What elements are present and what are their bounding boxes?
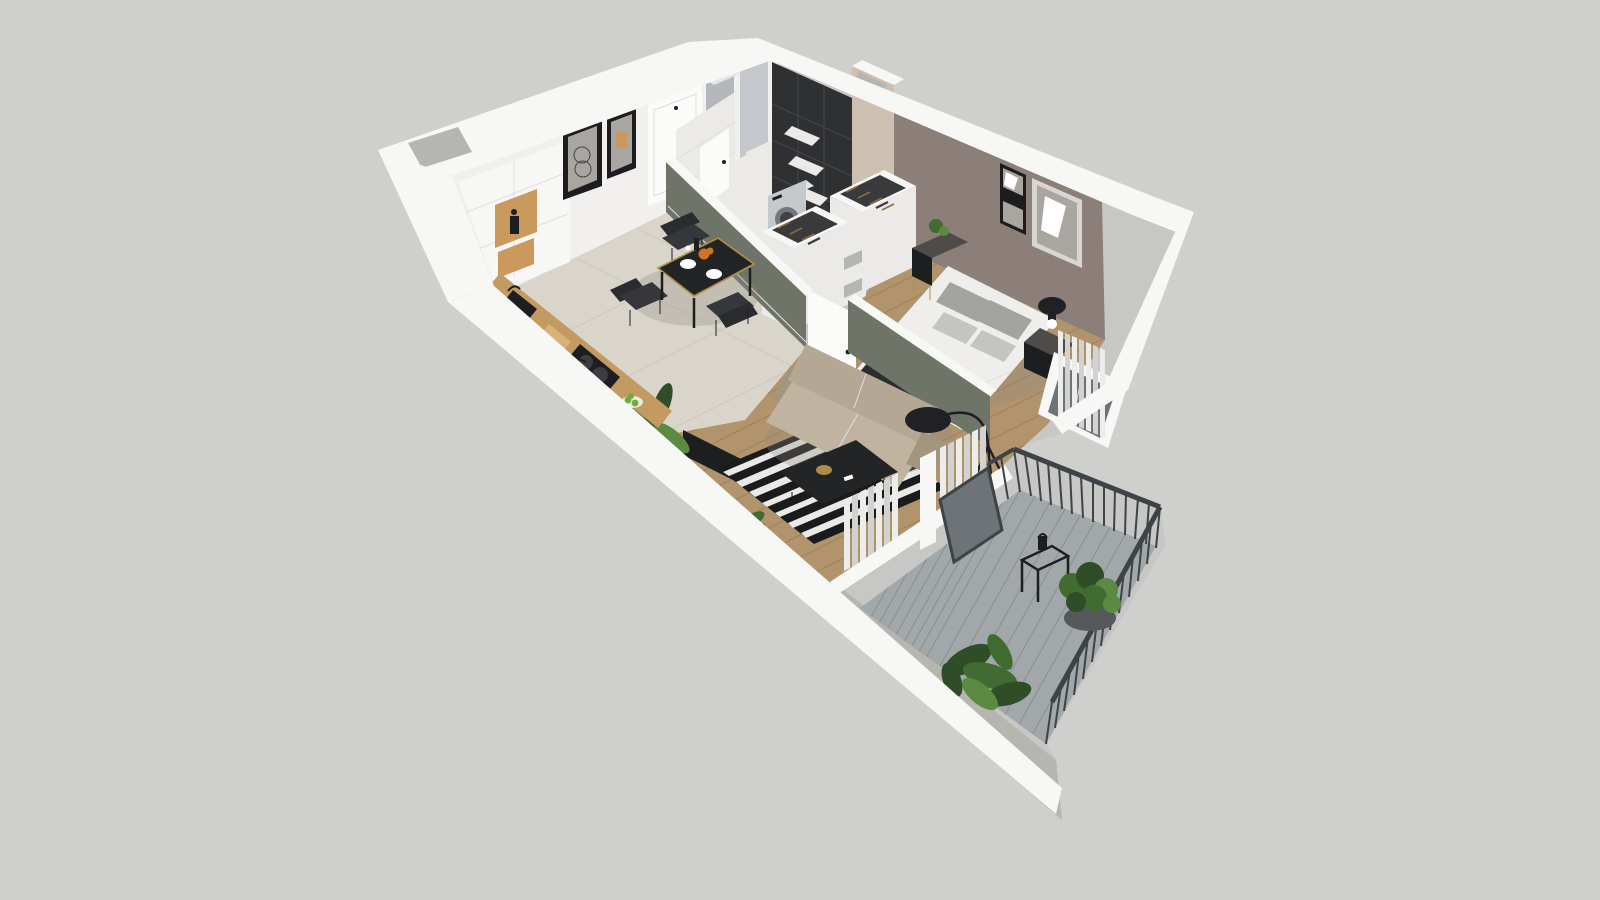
- bathroom-door-handle: [722, 160, 726, 164]
- cup: [686, 246, 691, 251]
- coffee-maker-top: [511, 209, 517, 215]
- plate-2: [706, 269, 722, 279]
- bottle: [694, 238, 699, 250]
- art-2-motif: [616, 132, 627, 148]
- bedside-lamp-globe: [1047, 319, 1057, 329]
- apartment-3d-floorplan: [0, 0, 1600, 900]
- coffee-maker: [510, 216, 519, 234]
- lantern: [1038, 536, 1047, 550]
- floor-lamp-shade: [905, 407, 951, 433]
- apple-2: [632, 400, 639, 407]
- apple-3: [628, 393, 634, 399]
- plate-1: [680, 259, 696, 269]
- floorplan-render-stage: [0, 0, 1600, 900]
- table-bowl: [816, 465, 832, 475]
- door-peephole: [674, 106, 678, 110]
